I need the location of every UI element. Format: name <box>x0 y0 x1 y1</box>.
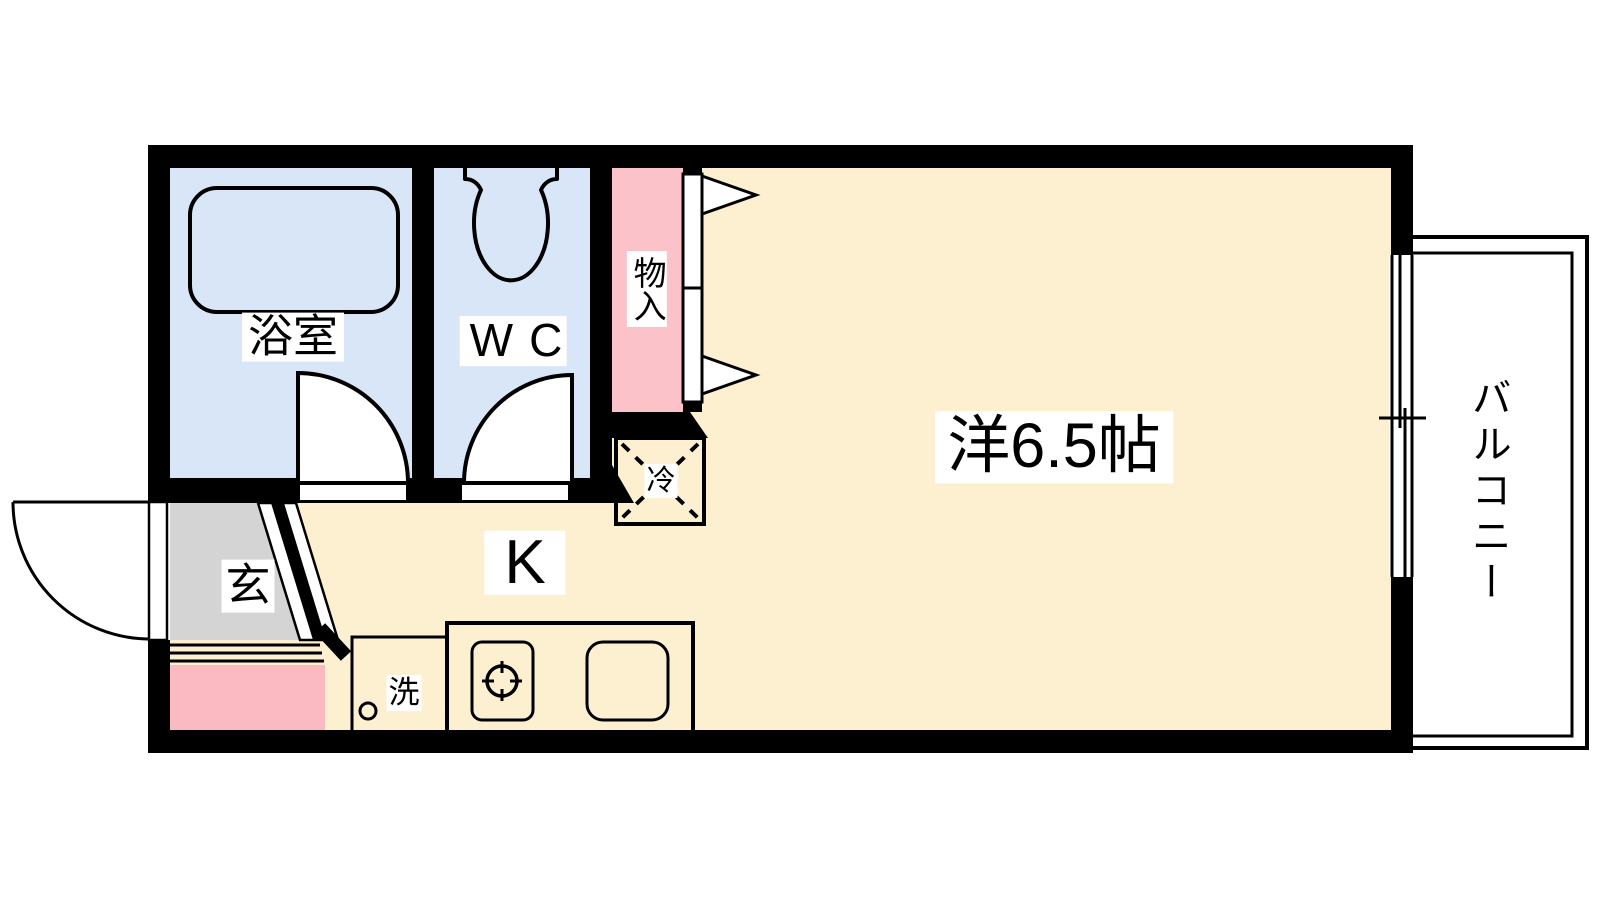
western-room-label: 洋6.5帖 <box>935 411 1173 483</box>
floor-plan: 浴室 WC 物入 洋6.5帖 K 玄 冷 洗 バルコニー <box>0 0 1600 900</box>
refrigerator-label: 冷 <box>644 464 677 498</box>
wc-label: WC <box>460 316 567 366</box>
wall-left-upper <box>148 145 170 503</box>
bath-threshold <box>300 483 406 500</box>
entrance-label: 玄 <box>221 560 274 613</box>
wall-under-closet <box>590 412 690 438</box>
washing-machine-label: 洗 <box>387 675 422 711</box>
porch-area <box>170 665 325 730</box>
balcony-label: バルコニー <box>1464 369 1510 615</box>
wall-top <box>148 145 1413 168</box>
closet-label: 物入 <box>627 251 667 327</box>
floor-plan-drawing <box>0 0 1600 900</box>
wall-right-upper <box>1391 145 1413 257</box>
kitchen-label: K <box>484 531 565 595</box>
wall-wc-closet <box>590 168 612 503</box>
wall-right-lower <box>1391 575 1413 753</box>
bathroom-label: 浴室 <box>242 313 344 362</box>
wc-threshold <box>462 483 568 500</box>
wc-label-text: WC <box>470 317 579 365</box>
wall-bottom <box>148 730 1413 753</box>
wall-bath-wc <box>412 168 434 503</box>
